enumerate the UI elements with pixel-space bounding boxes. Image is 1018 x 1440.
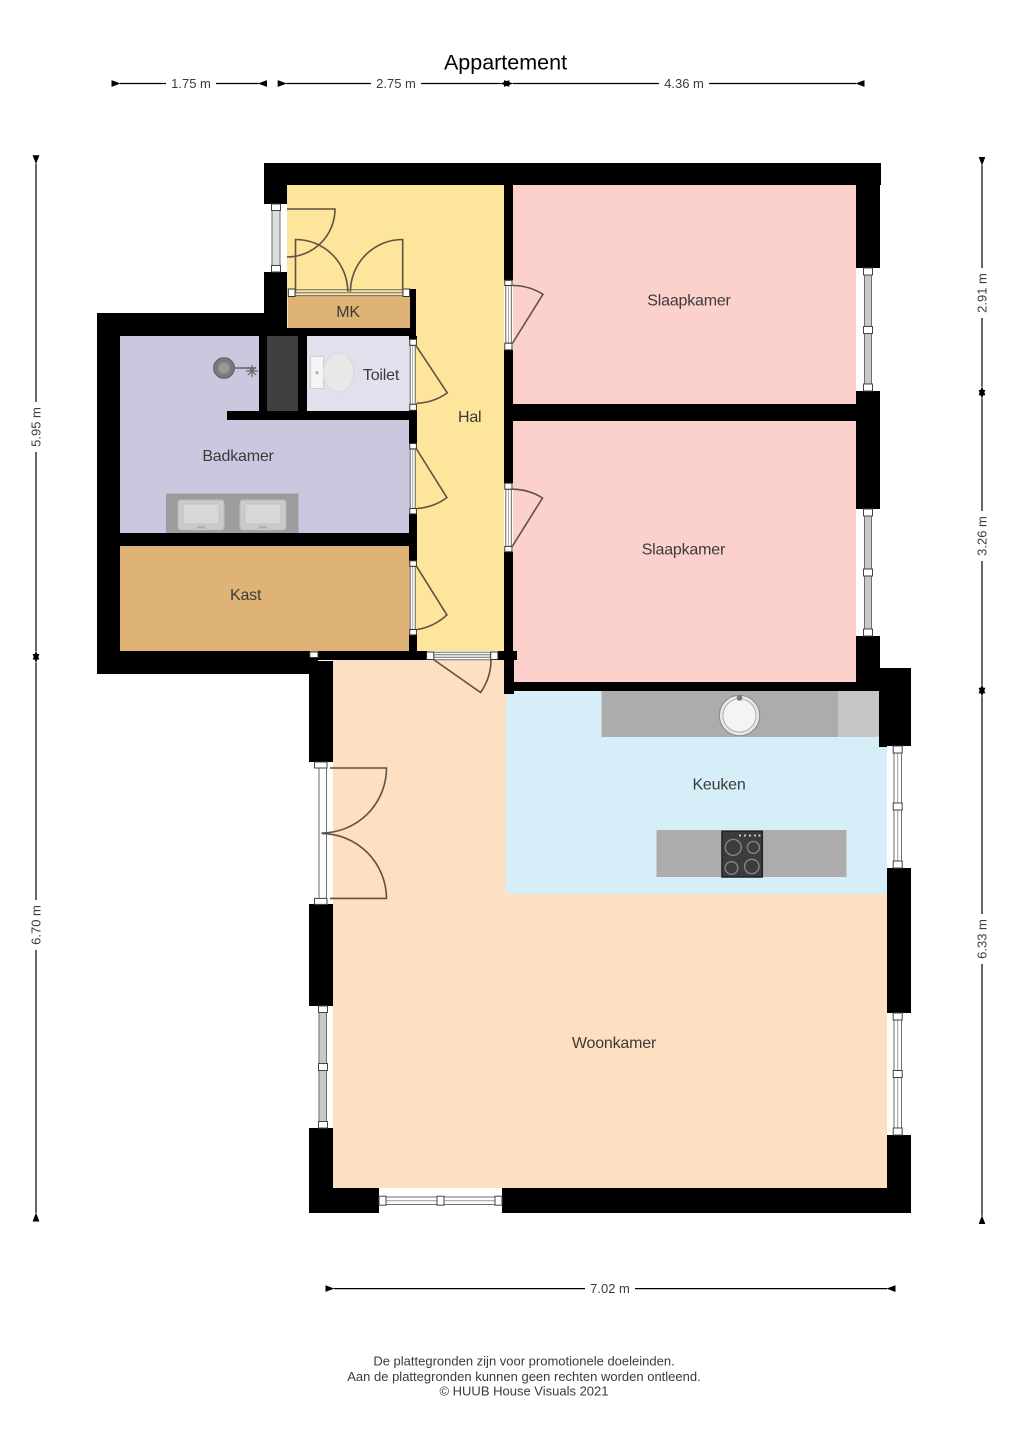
svg-text:7.02 m: 7.02 m bbox=[590, 1281, 630, 1296]
svg-text:Aan de plattegronden kunnen ge: Aan de plattegronden kunnen geen rechten… bbox=[347, 1369, 700, 1384]
svg-text:Hal: Hal bbox=[458, 409, 481, 426]
svg-text:Slaapkamer: Slaapkamer bbox=[642, 542, 726, 559]
svg-text:5.95 m: 5.95 m bbox=[29, 407, 44, 447]
svg-text:MK: MK bbox=[336, 304, 360, 321]
svg-text:6.70 m: 6.70 m bbox=[29, 905, 44, 945]
svg-text:Badkamer: Badkamer bbox=[202, 448, 274, 465]
svg-text:3.26 m: 3.26 m bbox=[975, 516, 990, 556]
svg-text:© HUUB House Visuals 2021: © HUUB House Visuals 2021 bbox=[439, 1384, 608, 1399]
svg-text:Keuken: Keuken bbox=[692, 777, 745, 794]
svg-text:Appartement: Appartement bbox=[444, 51, 567, 75]
svg-text:Toilet: Toilet bbox=[363, 367, 400, 384]
svg-text:Kast: Kast bbox=[230, 587, 262, 604]
svg-text:6.33 m: 6.33 m bbox=[975, 919, 990, 959]
svg-text:Woonkamer: Woonkamer bbox=[572, 1035, 657, 1052]
svg-text:2.91 m: 2.91 m bbox=[975, 273, 990, 313]
svg-text:4.36 m: 4.36 m bbox=[664, 76, 704, 91]
svg-text:1.75 m: 1.75 m bbox=[171, 76, 211, 91]
svg-text:2.75 m: 2.75 m bbox=[376, 76, 416, 91]
svg-text:Slaapkamer: Slaapkamer bbox=[647, 293, 731, 310]
svg-text:De plattegronden zijn voor pro: De plattegronden zijn voor promotionele … bbox=[373, 1353, 674, 1368]
